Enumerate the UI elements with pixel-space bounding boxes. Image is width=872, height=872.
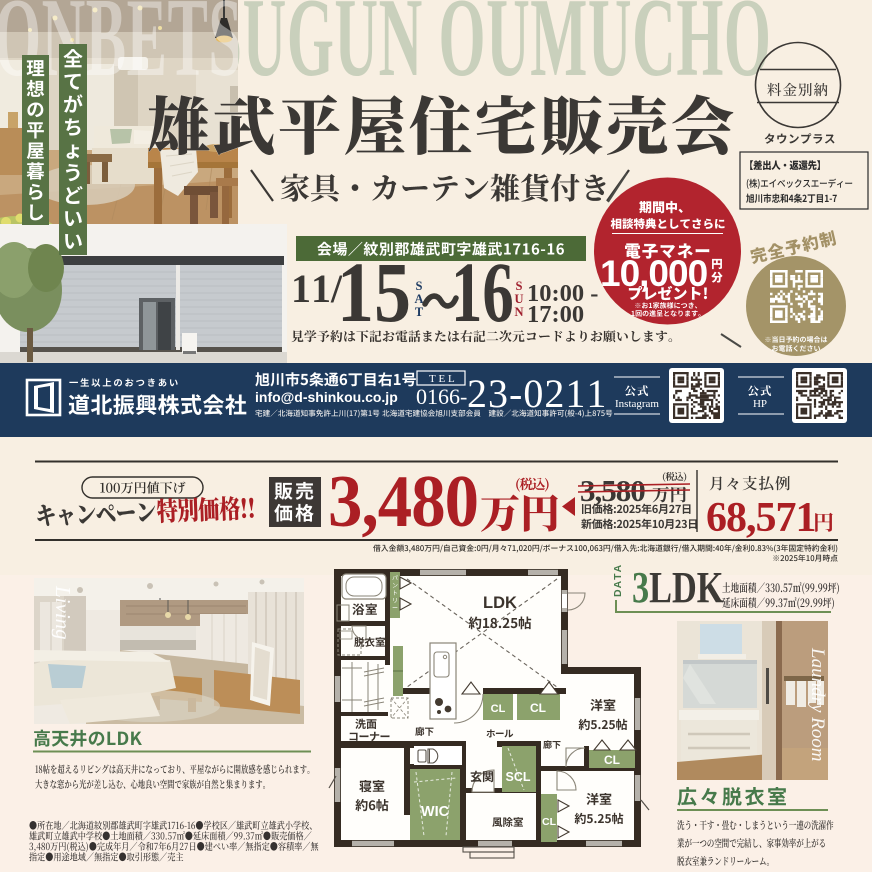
- svg-text:S: S: [516, 279, 523, 293]
- svg-text:11/: 11/: [291, 266, 343, 311]
- svg-text:23-0211: 23-0211: [467, 371, 607, 416]
- svg-text:CL: CL: [530, 701, 546, 715]
- svg-text:15: 15: [337, 246, 411, 340]
- svg-text:A: A: [414, 292, 423, 306]
- svg-text:DATA: DATA: [612, 564, 624, 597]
- svg-text:CL: CL: [542, 816, 557, 828]
- svg-text:Living: Living: [51, 585, 75, 640]
- svg-text:3,480: 3,480: [328, 461, 478, 543]
- svg-text:LDK: LDK: [483, 594, 517, 612]
- svg-text:S: S: [416, 279, 423, 293]
- svg-text:HP: HP: [753, 398, 767, 410]
- svg-text:CL: CL: [604, 753, 620, 767]
- svg-text:Instagram: Instagram: [615, 398, 659, 410]
- svg-text:Laundry Room: Laundry Room: [807, 647, 828, 761]
- svg-text:WIC: WIC: [421, 804, 450, 820]
- svg-text:N: N: [514, 305, 523, 319]
- svg-text:T: T: [415, 305, 424, 319]
- svg-text:info@d-shinkou.co.jp: info@d-shinkou.co.jp: [255, 389, 398, 405]
- svg-text:10,000: 10,000: [600, 253, 708, 294]
- svg-text:0166-: 0166-: [416, 384, 467, 409]
- svg-text:16: 16: [451, 246, 514, 341]
- svg-text:U: U: [514, 292, 523, 306]
- svg-text:3LDK: 3LDK: [632, 563, 724, 612]
- svg-text:CL: CL: [491, 703, 506, 715]
- svg-text:SCL: SCL: [506, 770, 531, 784]
- svg-text:17:00: 17:00: [527, 301, 584, 328]
- svg-text:68,571: 68,571: [706, 495, 816, 541]
